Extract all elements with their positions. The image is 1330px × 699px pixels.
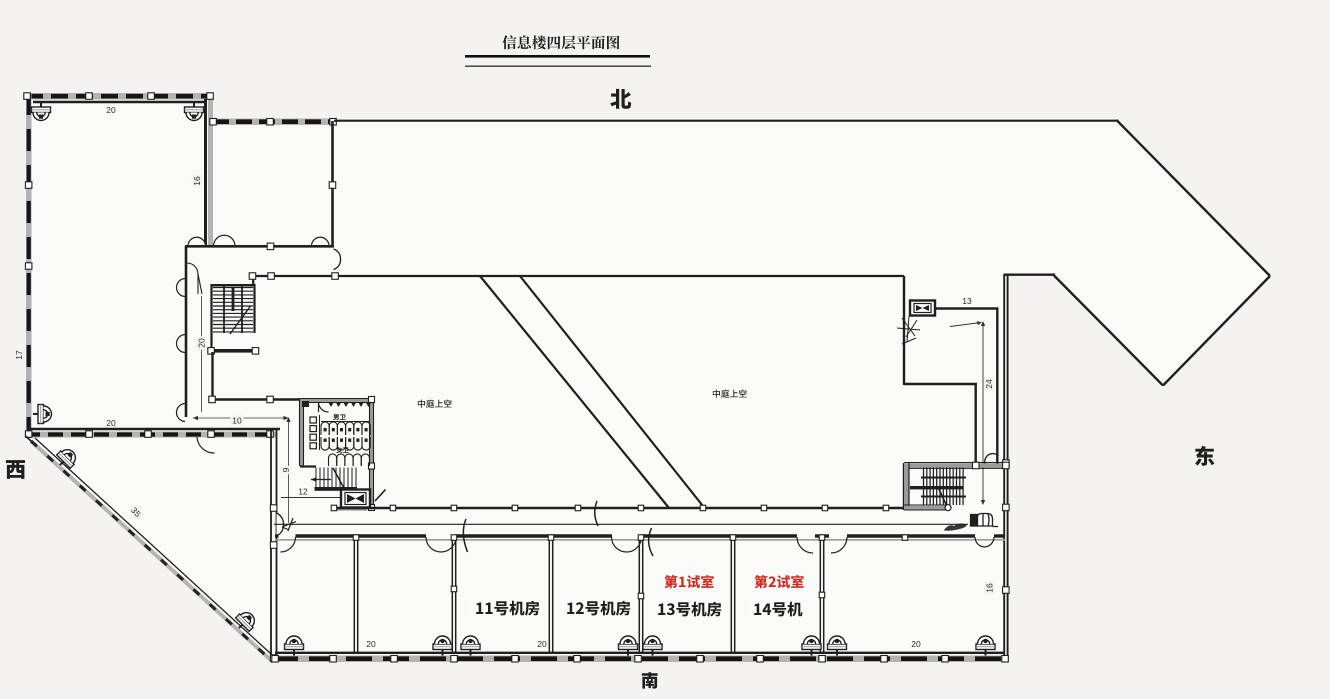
- svg-text:16: 16: [985, 583, 995, 593]
- svg-text:12: 12: [298, 487, 308, 497]
- svg-text:17: 17: [14, 350, 24, 360]
- svg-text:20: 20: [537, 639, 547, 649]
- svg-text:9: 9: [281, 467, 291, 472]
- svg-text:10: 10: [232, 416, 242, 426]
- svg-text:13: 13: [962, 296, 972, 306]
- svg-text:20: 20: [911, 639, 921, 649]
- svg-text:24: 24: [984, 379, 994, 389]
- svg-text:20: 20: [106, 418, 116, 428]
- svg-text:16: 16: [192, 176, 202, 186]
- svg-text:20: 20: [197, 338, 207, 348]
- svg-text:20: 20: [106, 105, 116, 115]
- svg-text:20: 20: [366, 639, 376, 649]
